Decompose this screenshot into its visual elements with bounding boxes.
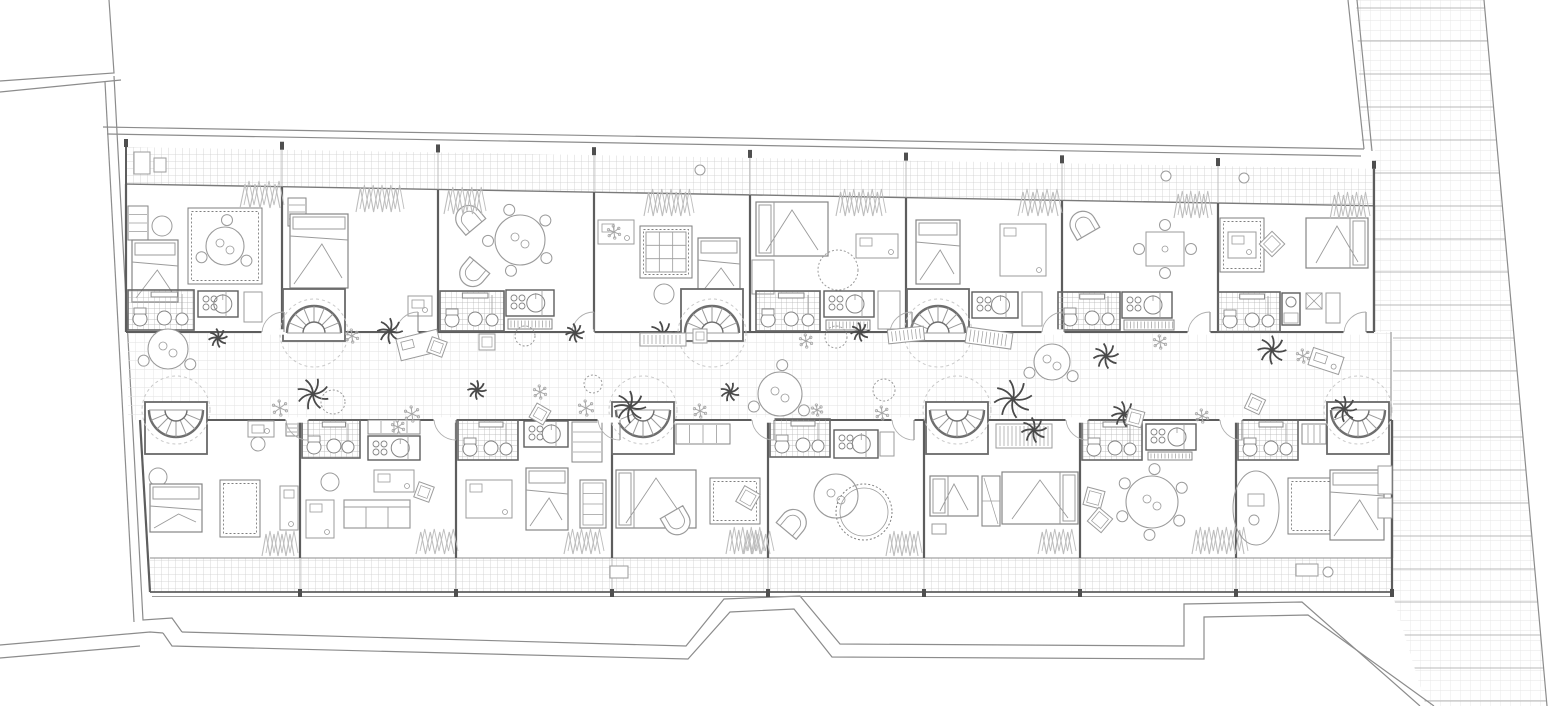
stool	[479, 334, 495, 350]
kitchen	[972, 292, 1018, 318]
rug	[220, 480, 260, 537]
bathroom	[1238, 420, 1298, 460]
bed	[698, 238, 740, 296]
bed	[756, 202, 828, 256]
cabinet	[880, 432, 894, 456]
desk	[306, 500, 334, 538]
crib	[580, 480, 606, 528]
shelf	[676, 424, 730, 444]
wardrobe	[982, 476, 1000, 526]
parcel-nw-outer	[0, 0, 114, 81]
parcel-nw-inner	[0, 80, 121, 92]
cabinet	[932, 524, 946, 534]
wardrobe-zigzag	[886, 531, 922, 556]
shelf	[128, 206, 148, 240]
wardrobe-zigzag	[416, 529, 458, 554]
unit-t1	[128, 181, 284, 330]
round-table	[1117, 464, 1188, 541]
cabinet	[878, 291, 900, 329]
units-bottom-row	[149, 417, 1392, 556]
stool	[1083, 487, 1105, 509]
unit-t4	[598, 189, 740, 304]
kitchen	[1146, 424, 1196, 450]
round-table	[483, 204, 552, 276]
bed	[150, 484, 202, 532]
desk	[1000, 224, 1046, 276]
side-table	[251, 437, 265, 451]
door	[892, 418, 914, 440]
southwest-diag-b	[0, 646, 140, 658]
desk	[280, 486, 298, 530]
shelf	[1302, 424, 1326, 444]
desk	[856, 234, 898, 258]
bed	[526, 468, 568, 530]
door	[1188, 312, 1210, 334]
unit-t7	[1058, 191, 1212, 330]
desk	[374, 470, 414, 492]
side-table	[695, 165, 705, 175]
cabinet	[1378, 466, 1392, 494]
cabinet	[1378, 498, 1392, 518]
stool	[693, 329, 707, 343]
kitchen	[506, 290, 554, 316]
cabinet	[752, 260, 774, 294]
bathroom	[440, 291, 504, 331]
door	[434, 418, 456, 440]
unit-b3	[458, 420, 606, 554]
cabinet-x	[1306, 293, 1322, 309]
bathroom	[756, 291, 820, 331]
side-table	[654, 284, 674, 304]
wardrobe-zigzag	[262, 531, 298, 556]
armchair	[454, 257, 489, 292]
bed	[1330, 470, 1384, 540]
sofa	[344, 500, 410, 528]
kitchen	[198, 291, 238, 317]
desk	[466, 480, 512, 518]
bathroom	[1218, 292, 1280, 332]
bench	[640, 333, 686, 346]
kitchen	[834, 430, 878, 458]
cabinet	[1022, 292, 1042, 326]
floor-plan-page	[0, 0, 1564, 706]
bed	[1306, 218, 1368, 268]
door	[1344, 312, 1366, 334]
side-table	[321, 473, 339, 491]
bed	[290, 214, 348, 288]
cabinet	[1296, 564, 1318, 576]
oval-rug	[1233, 471, 1279, 545]
kitchen	[1282, 293, 1300, 325]
cabinet	[244, 292, 262, 322]
bottom-balcony-strip	[150, 558, 1392, 597]
kitchen	[524, 421, 568, 447]
desk	[248, 421, 274, 437]
side-table	[149, 468, 167, 486]
wardrobe-zigzag	[564, 529, 604, 554]
cabinet	[1326, 293, 1340, 323]
unit-b7	[1082, 420, 1248, 554]
stool	[1259, 231, 1284, 256]
wardrobe-zigzag	[1038, 529, 1076, 554]
bench	[996, 424, 1052, 448]
cabinet	[154, 158, 166, 172]
shelf	[572, 422, 602, 462]
door	[262, 312, 284, 334]
radiator	[1148, 452, 1192, 460]
bathroom	[128, 290, 194, 330]
armchair	[1065, 207, 1100, 241]
stool	[1087, 507, 1112, 532]
cabinet	[610, 566, 628, 578]
bathroom	[770, 419, 830, 457]
unit-t5	[752, 189, 900, 331]
round-table	[196, 215, 252, 267]
side-table	[1161, 171, 1171, 181]
bed	[1002, 472, 1078, 524]
south-boundary-b	[163, 609, 1434, 706]
bathroom	[1058, 292, 1120, 330]
unit-t8	[1218, 192, 1370, 332]
desk	[1228, 232, 1256, 258]
unit-t3	[440, 187, 554, 331]
side-table	[1239, 173, 1249, 183]
kitchen	[824, 291, 874, 317]
kitchen	[1122, 292, 1172, 318]
floor-plan-drawing	[0, 0, 1564, 706]
rug	[640, 226, 692, 278]
bathroom	[458, 420, 518, 460]
bed	[916, 220, 960, 284]
desk	[598, 220, 634, 244]
armchair	[776, 504, 811, 539]
radiator	[1124, 320, 1174, 330]
side-table	[152, 216, 172, 236]
stool	[414, 482, 435, 503]
cabinet	[134, 152, 150, 174]
terrace-edge-upper	[103, 127, 1364, 149]
bathroom	[302, 420, 360, 458]
square-table	[1134, 220, 1197, 279]
bed	[930, 476, 978, 516]
southwest-diag-a	[0, 632, 163, 645]
side-table	[1323, 567, 1333, 577]
kitchen	[368, 436, 420, 460]
wardrobe-zigzag	[1192, 527, 1248, 554]
stool	[1125, 408, 1145, 428]
unit-b2	[302, 420, 458, 554]
rug	[1288, 478, 1334, 534]
